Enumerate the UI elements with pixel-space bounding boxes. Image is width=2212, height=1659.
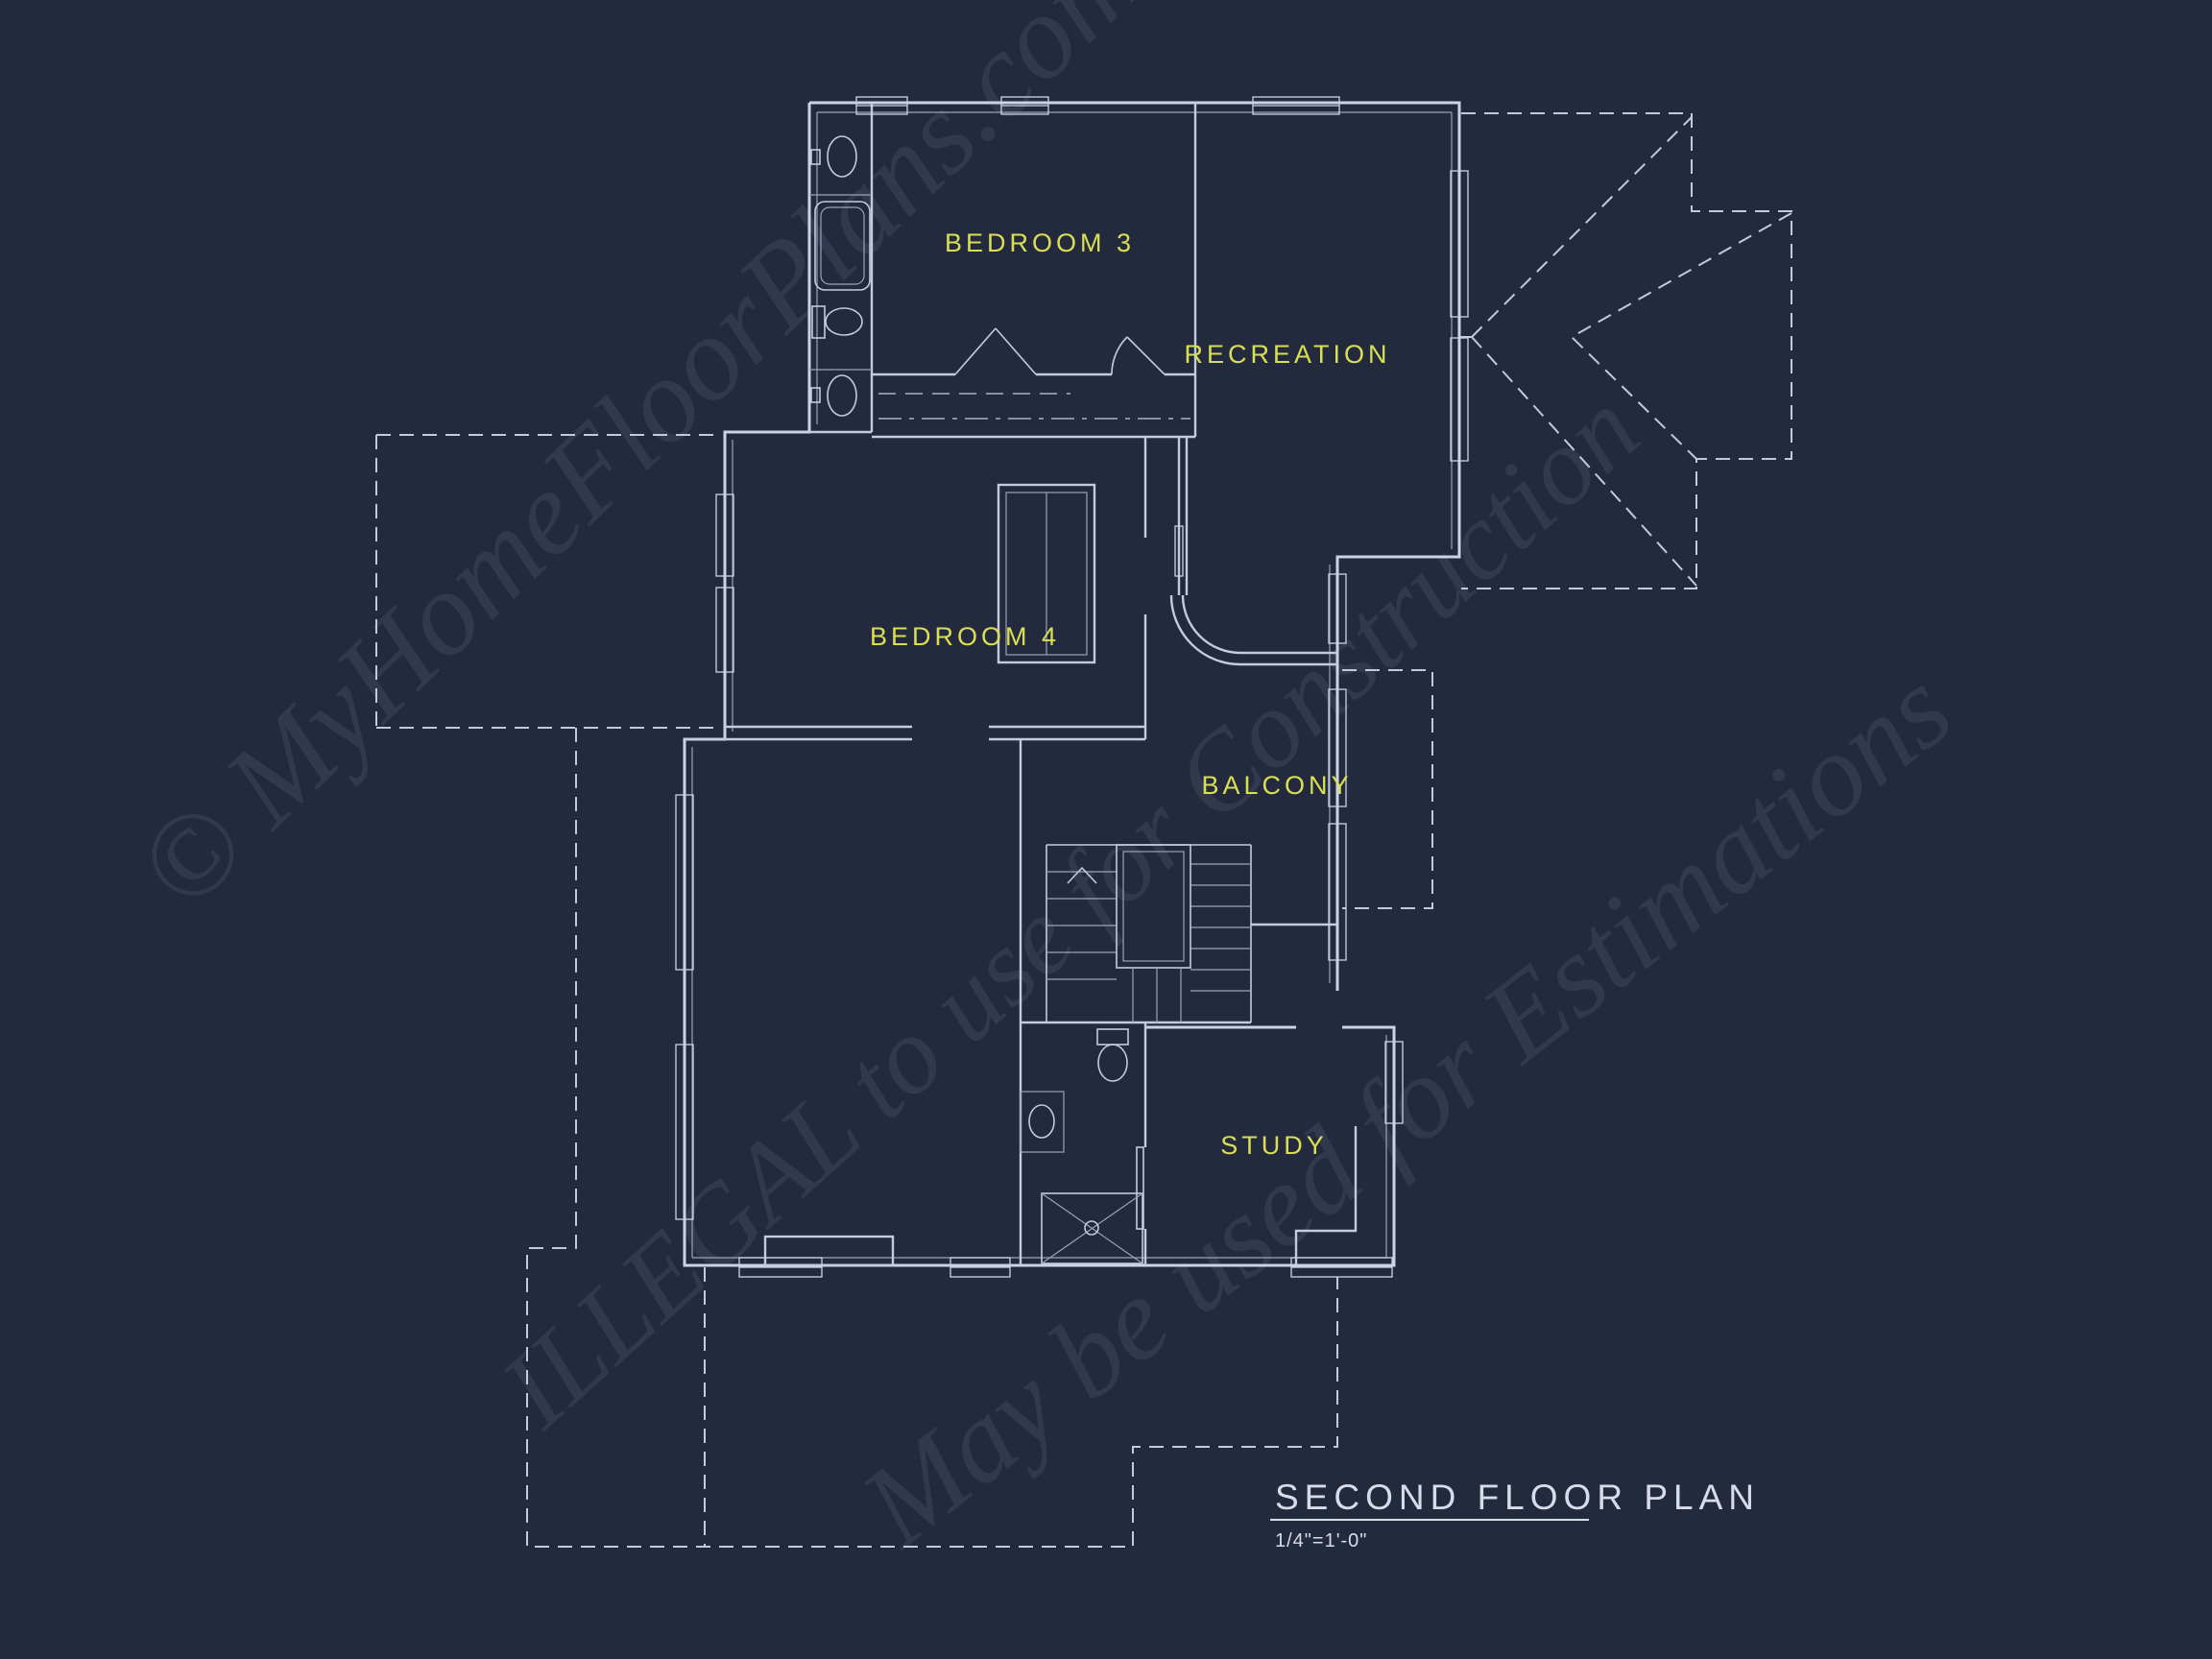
room-label-bedroom-4: BEDROOM 4 bbox=[870, 622, 1060, 651]
floor-plan-svg: © MyHomeFloorPlans.com ILLEGAL to use fo… bbox=[0, 0, 2212, 1659]
room-label-study: STUDY bbox=[1220, 1131, 1328, 1160]
room-label-balcony: BALCONY bbox=[1201, 771, 1352, 800]
blueprint-page: © MyHomeFloorPlans.com ILLEGAL to use fo… bbox=[0, 0, 2212, 1659]
room-label-bedroom-3: BEDROOM 3 bbox=[945, 228, 1135, 257]
plan-title: SECOND FLOOR PLAN bbox=[1275, 1478, 1760, 1517]
plan-scale: 1/4"=1'-0" bbox=[1275, 1530, 1367, 1551]
room-label-recreation: RECREATION bbox=[1184, 340, 1390, 369]
